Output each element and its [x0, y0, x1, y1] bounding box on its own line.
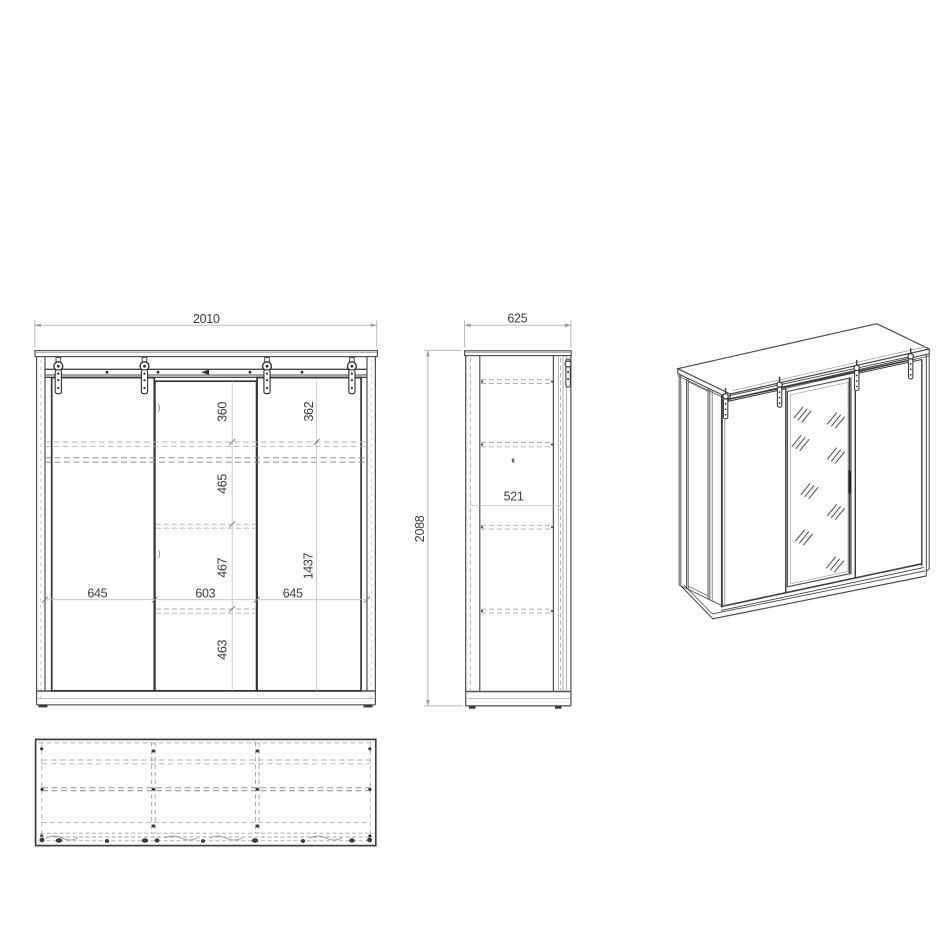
- svg-text:463: 463: [216, 639, 230, 659]
- svg-text:625: 625: [507, 312, 527, 326]
- svg-text:467: 467: [216, 557, 230, 577]
- svg-text:2010: 2010: [193, 312, 220, 326]
- svg-text:603: 603: [195, 586, 215, 600]
- svg-text:360: 360: [216, 402, 230, 422]
- svg-text:645: 645: [283, 586, 303, 600]
- svg-text:645: 645: [87, 586, 107, 600]
- svg-text:465: 465: [216, 474, 230, 494]
- svg-text:362: 362: [302, 401, 316, 421]
- svg-text:2088: 2088: [413, 515, 427, 542]
- svg-text:1437: 1437: [301, 552, 315, 579]
- svg-text:521: 521: [504, 490, 524, 504]
